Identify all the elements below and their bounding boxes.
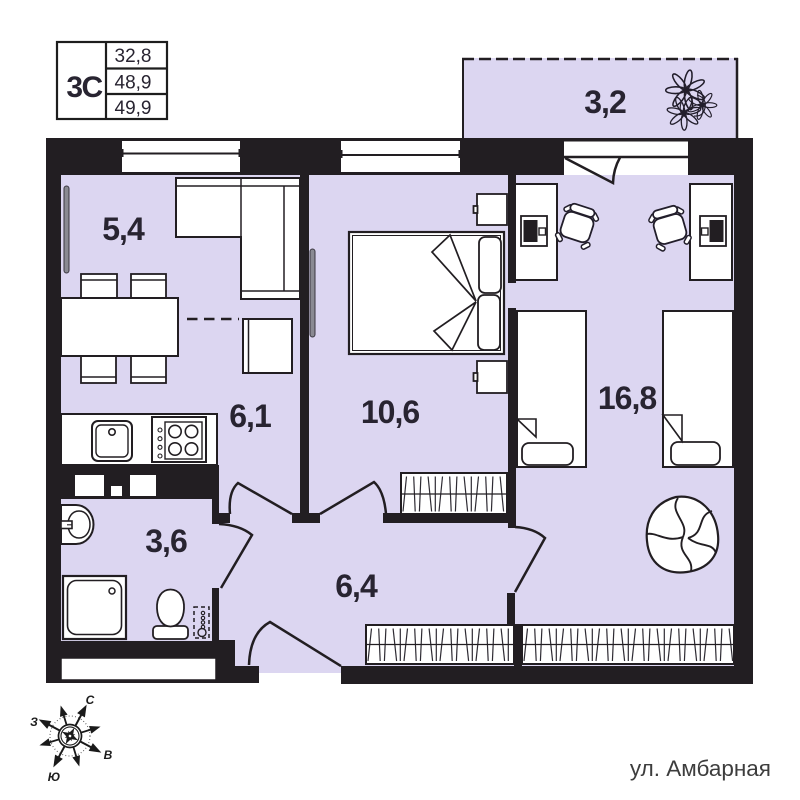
svg-text:6,1: 6,1 — [229, 398, 271, 434]
svg-text:ул. Амбарная: ул. Амбарная — [630, 756, 771, 781]
svg-text:32,8: 32,8 — [115, 46, 152, 67]
svg-text:3С: 3С — [66, 71, 102, 104]
svg-text:16,8: 16,8 — [598, 380, 656, 416]
svg-text:З: З — [30, 715, 38, 729]
svg-text:Ю: Ю — [48, 770, 61, 784]
svg-text:3,2: 3,2 — [584, 84, 626, 120]
svg-text:6,4: 6,4 — [335, 568, 378, 604]
svg-text:В: В — [104, 748, 113, 762]
svg-text:48,9: 48,9 — [115, 73, 152, 94]
svg-text:3,6: 3,6 — [145, 523, 187, 559]
svg-text:10,6: 10,6 — [361, 394, 419, 430]
svg-text:5,4: 5,4 — [102, 211, 145, 247]
svg-text:49,9: 49,9 — [115, 98, 152, 119]
svg-text:С: С — [86, 693, 95, 707]
